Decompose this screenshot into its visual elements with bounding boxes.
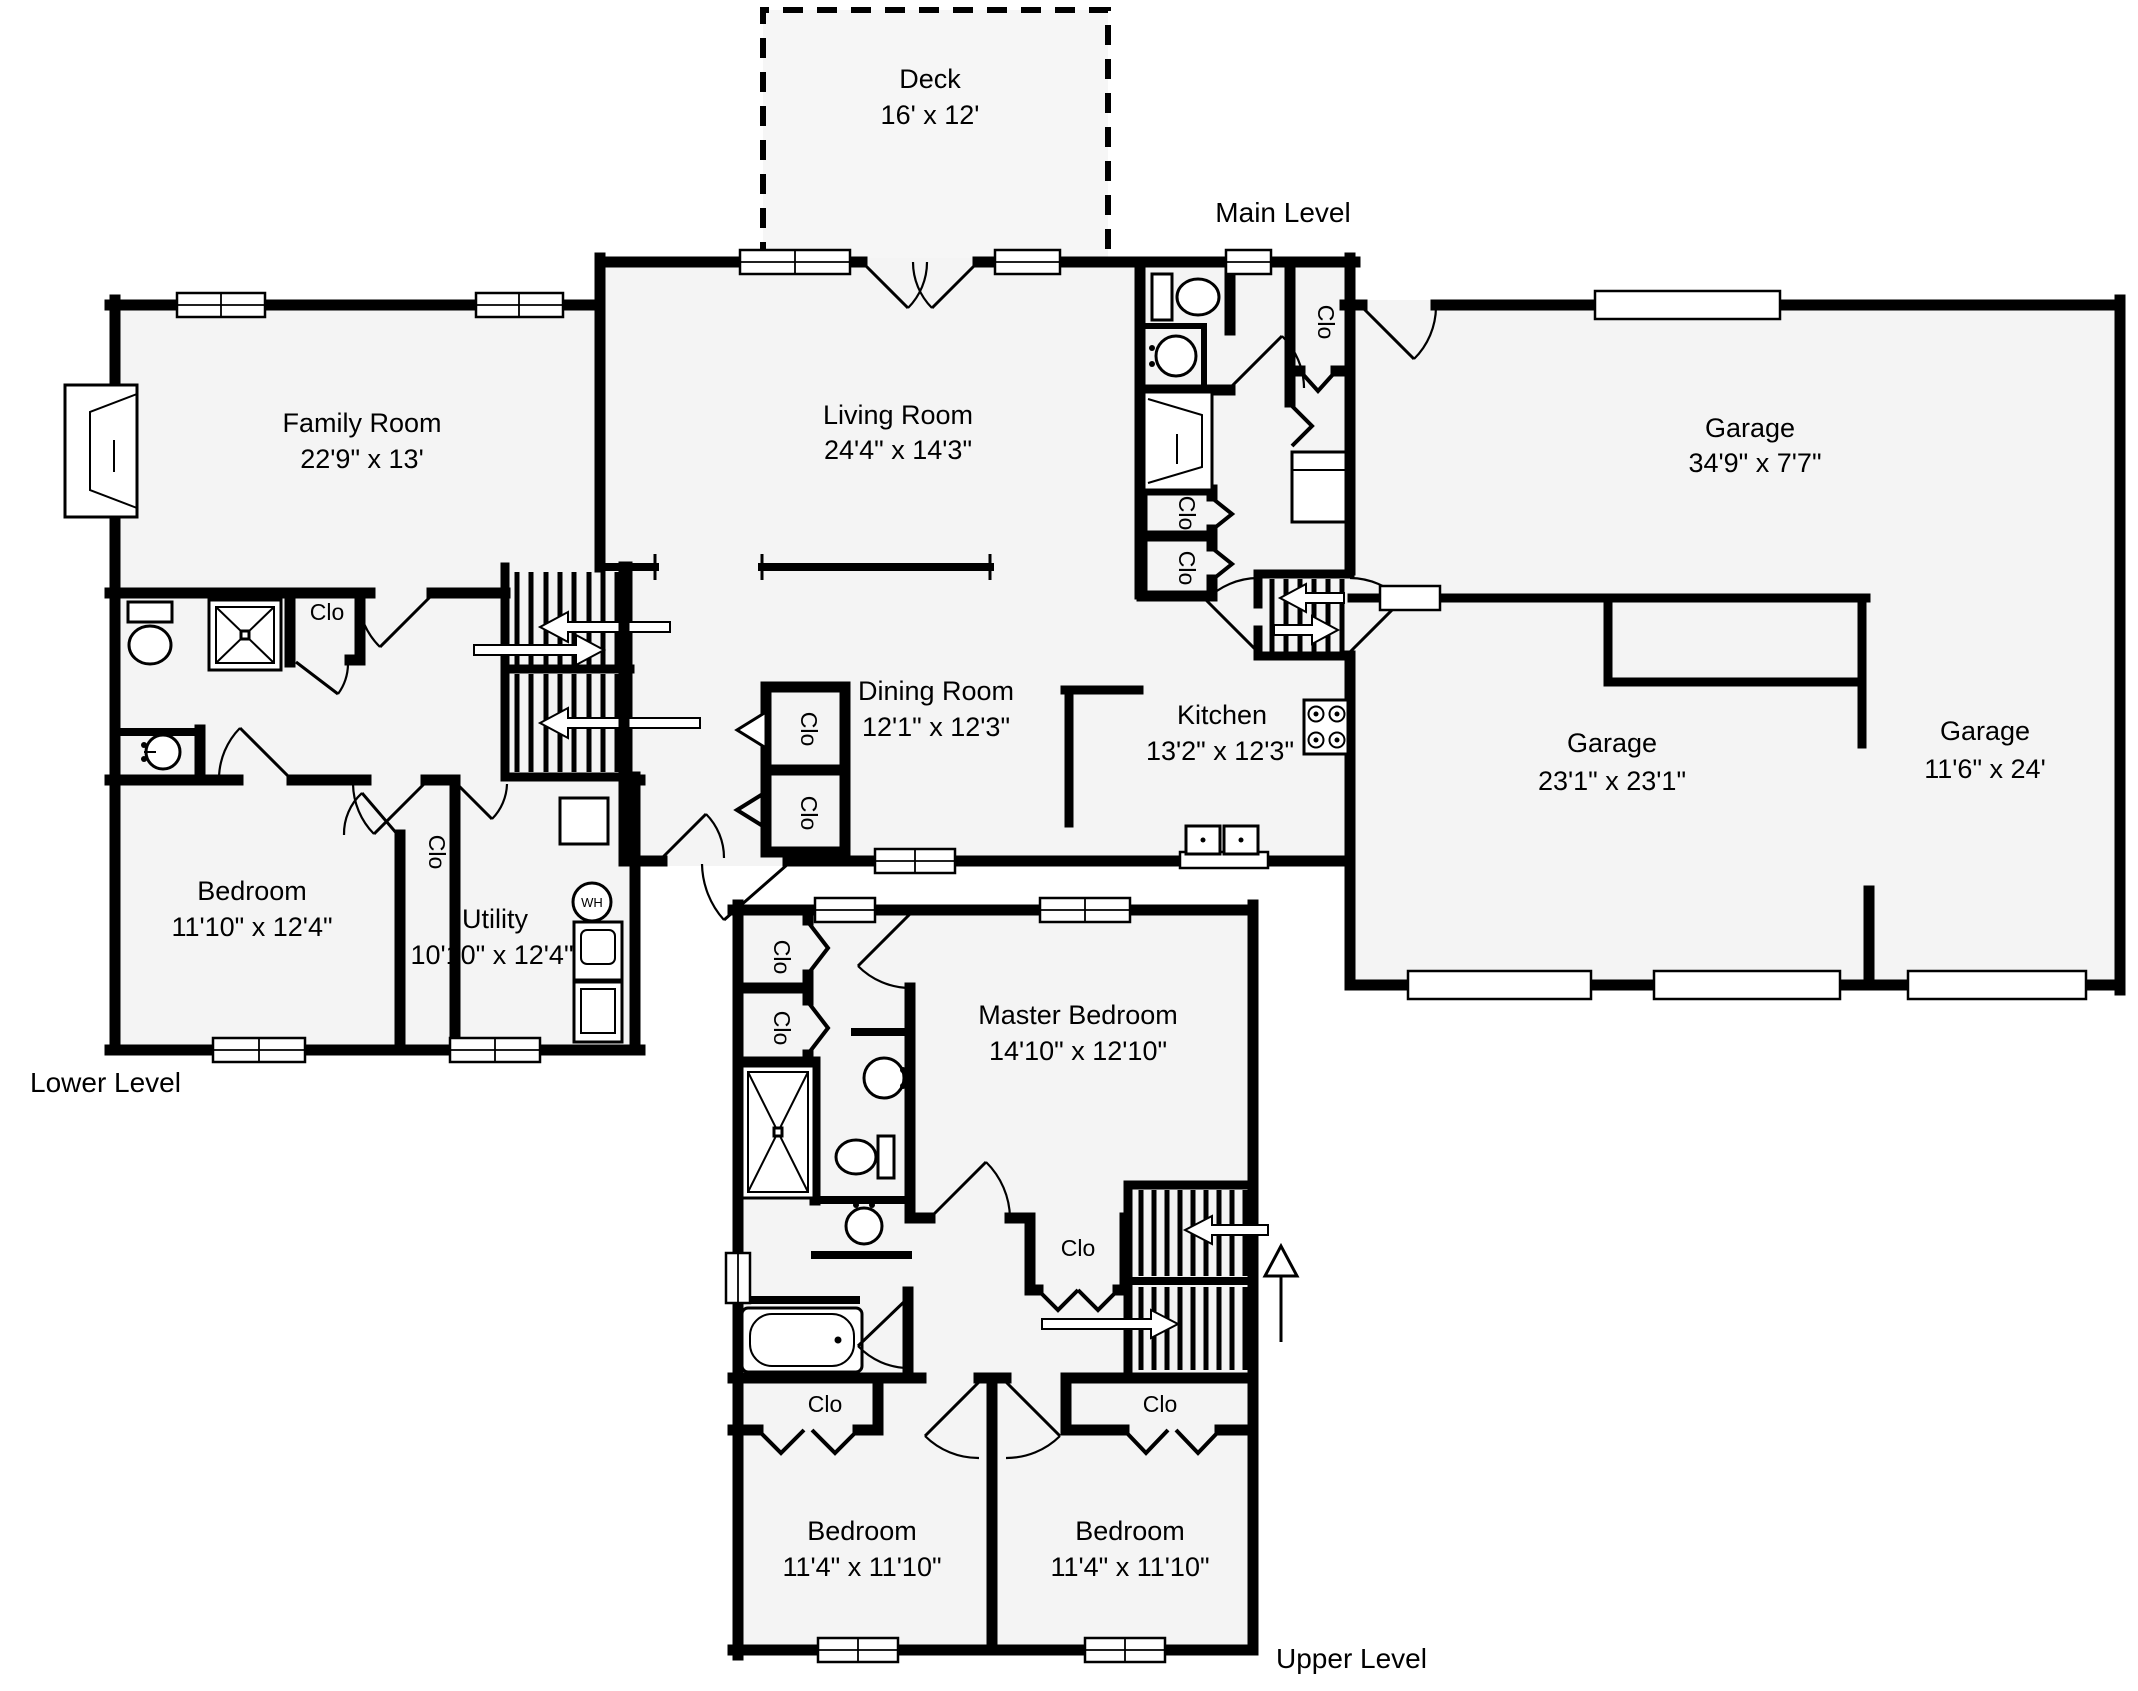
toilet-icon	[878, 1136, 894, 1178]
closet-label: Clo	[1143, 1391, 1178, 1417]
garage-rear-label: Garage	[1705, 413, 1795, 443]
closet-label: Clo	[1174, 551, 1200, 586]
garage-main-label: Garage	[1567, 728, 1657, 758]
deck-dims: 16' x 12'	[881, 100, 980, 130]
bedroom-lower-label: Bedroom	[197, 876, 307, 906]
garage-rear-window	[1595, 291, 1780, 319]
closet-label: Clo	[808, 1391, 843, 1417]
utility-label: Utility	[462, 904, 528, 934]
living-room-label: Living Room	[823, 400, 973, 430]
closet-label: Clo	[310, 599, 345, 625]
water-heater-label: WH	[581, 895, 603, 910]
main-level-area	[600, 258, 1350, 866]
sink-icon	[1156, 336, 1196, 376]
upper-level-label: Upper Level	[1276, 1643, 1427, 1674]
family-room-label: Family Room	[282, 408, 441, 438]
closet-label: Clo	[1174, 496, 1200, 531]
bedroom-left-dims: 11'4" x 11'10"	[782, 1552, 941, 1582]
garage-main-dims: 23'1" x 23'1"	[1538, 766, 1686, 796]
family-room-dims: 22'9" x 13'	[300, 444, 423, 474]
window	[815, 898, 875, 922]
sink-icon	[864, 1058, 904, 1098]
entry-direction-arrow	[1265, 1246, 1297, 1342]
bedroom-right-dims: 11'4" x 11'10"	[1050, 1552, 1209, 1582]
master-bedroom-dims: 14'10" x 12'10"	[989, 1036, 1167, 1066]
window	[875, 849, 955, 873]
deck-area	[763, 10, 1108, 262]
kitchen-label: Kitchen	[1177, 700, 1267, 730]
bedroom-left-label: Bedroom	[807, 1516, 917, 1546]
window	[818, 1638, 898, 1662]
floor-plan-page: WH	[0, 0, 2138, 1691]
toilet-bowl-icon	[129, 626, 171, 664]
window	[995, 250, 1060, 274]
garage-pass-through	[1380, 586, 1440, 610]
window	[726, 1253, 750, 1303]
closet-label: Clo	[424, 835, 450, 870]
freezer-icon	[560, 798, 608, 844]
toilet-icon	[1152, 274, 1172, 320]
toilet-bowl-icon	[836, 1140, 876, 1174]
bedroom-lower-dims: 11'10" x 12'4"	[171, 912, 332, 942]
kitchen-dims: 13'2" x 12'3"	[1146, 736, 1294, 766]
main-level-label: Main Level	[1215, 197, 1350, 228]
sink-icon	[846, 1208, 882, 1244]
garage-side-dims: 11'6" x 24'	[1924, 754, 2045, 784]
window	[1226, 250, 1271, 274]
dining-room-label: Dining Room	[858, 676, 1014, 706]
closet-label: Clo	[1061, 1235, 1096, 1261]
garage-side-label: Garage	[1940, 716, 2030, 746]
living-room-dims: 24'4" x 14'3"	[824, 435, 972, 465]
tub-icon	[742, 1308, 862, 1372]
garage-rear-dims: 34'9" x 7'7"	[1688, 448, 1821, 478]
toilet-bowl-icon	[1177, 279, 1219, 315]
toilet-icon	[128, 602, 172, 622]
window	[213, 1038, 305, 1062]
lower-level-label: Lower Level	[30, 1067, 181, 1098]
dining-room-dims: 12'1" x 12'3"	[862, 712, 1010, 742]
master-bedroom-label: Master Bedroom	[978, 1000, 1178, 1030]
closet-label: Clo	[1313, 305, 1339, 340]
garage-door	[1408, 971, 1591, 999]
window	[476, 293, 563, 317]
garage-door	[1654, 971, 1840, 999]
garage-door	[1908, 971, 2086, 999]
utility-dims: 10'10" x 12'4"	[410, 940, 573, 970]
floor-plan-drawing: WH	[0, 0, 2138, 1691]
family-room-fireplace	[65, 385, 137, 517]
deck-label: Deck	[899, 64, 961, 94]
window	[450, 1038, 540, 1062]
window	[177, 293, 265, 317]
window	[1040, 898, 1130, 922]
fridge-icon	[1292, 452, 1346, 522]
window	[1085, 1638, 1165, 1662]
window	[740, 250, 850, 274]
bedroom-right-label: Bedroom	[1075, 1516, 1185, 1546]
closet-label: Clo	[796, 796, 822, 831]
closet-label: Clo	[796, 712, 822, 747]
garage-area	[1350, 300, 2125, 988]
closet-label: Clo	[769, 1011, 795, 1046]
fireplace-icon	[65, 385, 137, 517]
closet-label: Clo	[769, 940, 795, 975]
